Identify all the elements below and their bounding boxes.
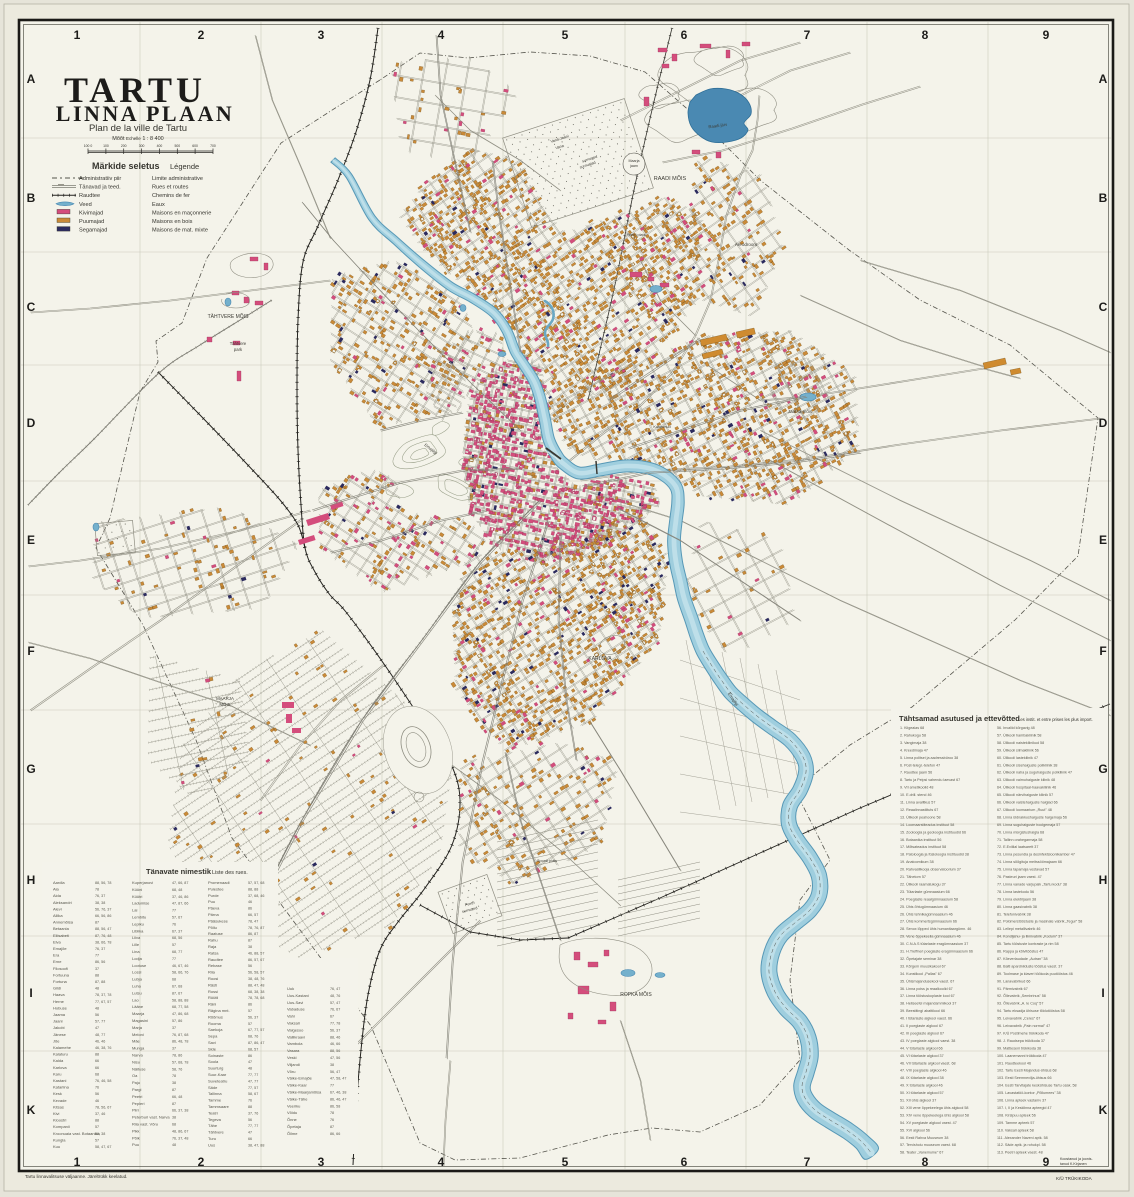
svg-text:75. Linna tapamaja vestavad 5: 75. Linna tapamaja vestavad 57	[997, 868, 1049, 872]
svg-text:37. Linna tööstuskoplaste kool: 37. Linna tööstuskoplaste kool 67	[900, 994, 955, 998]
svg-text:49. X tütarlaste algkool 46: 49. X tütarlaste algkool 46	[900, 1084, 943, 1088]
svg-text:57, 47: 57, 47	[330, 1001, 340, 1005]
svg-text:68, 77, 58: 68, 77, 58	[172, 1005, 188, 1009]
svg-text:Raatuse: Raatuse	[208, 931, 224, 936]
svg-text:68, 77: 68, 77	[172, 950, 182, 954]
svg-text:7: 7	[804, 28, 811, 42]
svg-text:Võru: Võru	[287, 1069, 295, 1074]
svg-text:Piiri: Piiri	[132, 1108, 139, 1113]
svg-text:67: 67	[330, 1015, 334, 1019]
svg-text:3: 3	[318, 28, 325, 42]
svg-text:37, 68, 46: 37, 68, 46	[248, 894, 264, 898]
svg-text:88, 56: 88, 56	[330, 1049, 340, 1053]
svg-text:Promenaadi: Promenaadi	[208, 880, 230, 885]
svg-text:7. Raudtee jaam 56: 7. Raudtee jaam 56	[900, 771, 932, 775]
svg-text:Herne: Herne	[53, 999, 65, 1004]
svg-text:87. Kõeverlaudade „Autran" 38: 87. Kõeverlaudade „Autran" 38	[997, 957, 1048, 961]
svg-text:Tähe: Tähe	[208, 1123, 218, 1128]
svg-text:80. Linna gaasivabrik 38: 80. Linna gaasivabrik 38	[997, 905, 1037, 909]
svg-text:Maisons en maçonnerie: Maisons en maçonnerie	[152, 210, 211, 216]
svg-text:104. Eesti Tarvitajate keskühi: 104. Eesti Tarvitajate keskühisuse Tartu…	[997, 1084, 1077, 1088]
svg-text:86, 58: 86, 58	[330, 1104, 340, 1108]
svg-text:9. VII ametikoolid 48: 9. VII ametikoolid 48	[900, 786, 933, 790]
svg-text:15. Zooloogia ja geoloogia ins: 15. Zooloogia ja geoloogia instituudid 6…	[900, 830, 966, 834]
svg-text:38, 47, 88: 38, 47, 88	[248, 1143, 264, 1147]
svg-text:Päeva: Päeva	[208, 906, 220, 911]
svg-text:66, 48: 66, 48	[172, 1095, 182, 1099]
svg-text:78, 86: 78, 86	[172, 1054, 182, 1058]
svg-text:Liiva: Liiva	[132, 935, 141, 940]
svg-text:78. Linna lastekodu 56: 78. Linna lastekodu 56	[997, 890, 1034, 894]
svg-text:77, 57: 77, 57	[248, 1086, 258, 1090]
svg-text:Õilme: Õilme	[287, 1131, 298, 1136]
svg-text:67. Ülikooli loomaarium „Ruut": 67. Ülikooli loomaarium „Ruut" 48	[997, 808, 1052, 812]
svg-text:Puu: Puu	[208, 899, 215, 904]
svg-text:38: 38	[172, 1116, 176, 1120]
svg-text:76: 76	[248, 1099, 252, 1103]
svg-text:57: 57	[172, 943, 176, 947]
svg-text:Rästi: Rästi	[208, 982, 217, 987]
svg-text:108. Kirsipuu apteek 56: 108. Kirsipuu apteek 56	[997, 1113, 1036, 1117]
svg-text:92. Õllevabrik „Sembrinus" 58: 92. Õllevabrik „Sembrinus" 58	[997, 993, 1046, 998]
svg-text:27. Ühis kommertsgümnaasium 6: 27. Ühis kommertsgümnaasium 66	[900, 920, 957, 924]
svg-text:57, 67: 57, 67	[172, 916, 182, 920]
svg-text:46. VII tütarlaste algkool vae: 46. VII tütarlaste algkool vaest. 68	[900, 1061, 956, 1065]
svg-text:57. Ülikooli hambakliinik 58: 57. Ülikooli hambakliinik 58	[997, 734, 1041, 738]
svg-text:tanud K.Kirjanen: tanud K.Kirjanen	[1060, 1162, 1087, 1166]
svg-text:87, 88: 87, 88	[95, 980, 105, 984]
svg-text:58, 67: 58, 67	[248, 1092, 258, 1096]
svg-text:Jaama mõis: Jaama mõis	[788, 409, 813, 414]
svg-text:200: 200	[121, 144, 127, 148]
svg-text:113. Peetri apteek vaest. 48: 113. Peetri apteek vaest. 48	[997, 1151, 1043, 1155]
svg-text:Tammsaare: Tammsaare	[208, 1104, 230, 1109]
svg-text:68: 68	[172, 1123, 176, 1127]
svg-text:Lossi: Lossi	[132, 970, 141, 975]
svg-text:86, 46, 47: 86, 46, 47	[330, 1097, 346, 1101]
svg-text:76, 37, 48: 76, 37, 48	[172, 1136, 188, 1140]
svg-text:Jõe: Jõe	[53, 1038, 60, 1043]
svg-text:Mäe: Mäe	[132, 1039, 141, 1044]
svg-text:Pepleri: Pepleri	[132, 1101, 145, 1106]
svg-text:24. Poeglaste reaalgümnaasium: 24. Poeglaste reaalgümnaasium 58	[900, 897, 958, 901]
svg-text:Tartu linnavalitsuse väljaanne: Tartu linnavalitsuse väljaanne. Järeltrü…	[25, 1174, 127, 1179]
svg-text:Näituse: Näituse	[132, 1066, 146, 1071]
svg-text:Rooma: Rooma	[208, 1021, 222, 1026]
svg-text:88, 88: 88, 88	[248, 887, 258, 891]
svg-text:66, 38: 66, 38	[95, 1132, 105, 1136]
svg-text:500: 500	[174, 144, 180, 148]
svg-text:Plan de la ville de Tartu: Plan de la ville de Tartu	[89, 123, 187, 134]
svg-text:Karlova: Karlova	[53, 1065, 67, 1070]
svg-text:88, 47, 48: 88, 47, 48	[248, 983, 264, 987]
svg-text:47, 66, 87: 47, 66, 87	[172, 881, 188, 885]
svg-text:Luha: Luha	[132, 984, 142, 989]
svg-text:Suurturg: Suurturg	[208, 1066, 223, 1071]
svg-text:Elva: Elva	[53, 939, 62, 944]
svg-text:Lodja: Lodja	[132, 956, 143, 961]
svg-text:19. Anatoomikum 38: 19. Anatoomikum 38	[900, 860, 934, 864]
svg-text:97. K/Ü Postimehe trükikoda 4: 97. K/Ü Postimehe trükikoda 47	[997, 1032, 1049, 1036]
svg-text:58. Ülikooli naistekliinikud: 58. Ülikooli naistekliinikud 58	[997, 741, 1044, 745]
svg-text:Märkide seletus: Märkide seletus	[92, 161, 160, 171]
svg-text:67, 37: 67, 37	[172, 929, 182, 933]
svg-text:6: 6	[681, 28, 688, 42]
svg-text:48: 48	[248, 1067, 252, 1071]
svg-text:58, 66, 76: 58, 66, 76	[172, 971, 188, 975]
svg-text:48, 77: 48, 77	[95, 1033, 105, 1037]
svg-text:46, 38, 76: 46, 38, 76	[95, 1046, 111, 1050]
svg-text:40. I tütarlaste algkool vaest: 40. I tütarlaste algkool vaest. 66	[900, 1017, 952, 1021]
svg-text:Savi: Savi	[208, 1040, 216, 1045]
svg-text:I: I	[29, 986, 32, 1000]
svg-text:68: 68	[95, 1072, 99, 1076]
svg-text:110. Vaksali apteek 58: 110. Vaksali apteek 58	[997, 1128, 1034, 1132]
svg-text:53. XIV vene õppekeelega ühis: 53. XIV vene õppekeelega ühis algkool 58	[900, 1113, 969, 1117]
svg-text:56, 47: 56, 47	[330, 1070, 340, 1074]
svg-text:Soinaste: Soinaste	[208, 1053, 224, 1058]
svg-text:73. Linna pesundia ja desinfek: 73. Linna pesundia ja desinfektsioonikam…	[997, 853, 1075, 857]
svg-text:87: 87	[248, 939, 252, 943]
svg-text:25. Ühis õhtugümnaasium 46: 25. Ühis õhtugümnaasium 46	[900, 905, 948, 909]
svg-text:Filosoofi: Filosoofi	[53, 966, 68, 971]
svg-text:79. Linna elektrijaam 38: 79. Linna elektrijaam 38	[997, 897, 1036, 901]
svg-text:Peetri plats: Peetri plats	[627, 233, 646, 237]
svg-text:86: 86	[248, 1003, 252, 1007]
svg-text:84. Kondijahu- ja liimivabrik: 84. Kondijahu- ja liimivabrik „Kodum" 37	[997, 935, 1062, 939]
svg-text:47, 77: 47, 77	[248, 1079, 258, 1083]
svg-text:56. Invaliid kõrgavig 48: 56. Invaliid kõrgavig 48	[997, 726, 1035, 730]
svg-text:56, 76, 37: 56, 76, 37	[95, 907, 111, 911]
svg-text:37: 37	[172, 1026, 176, 1030]
svg-text:Tähtvere: Tähtvere	[230, 341, 247, 346]
svg-text:106. Linna apteek vastamv 37: 106. Linna apteek vastamv 37	[997, 1099, 1046, 1103]
svg-text:77, 77: 77, 77	[248, 1073, 258, 1077]
svg-text:11. Linna avalitkus 57: 11. Linna avalitkus 57	[900, 801, 935, 805]
svg-text:Võidu: Võidu	[287, 1110, 297, 1115]
svg-text:Väike-Tähe: Väike-Tähe	[287, 1096, 308, 1101]
svg-text:76, 37: 76, 37	[95, 947, 105, 951]
svg-text:76: 76	[172, 922, 176, 926]
svg-text:Küütri: Küütri	[132, 894, 143, 899]
svg-text:400: 400	[157, 144, 163, 148]
svg-text:62. Ülikooli naha ja suguhaigu: 62. Ülikooli naha ja suguhaiguste polikl…	[997, 771, 1072, 775]
svg-text:29. Vene õppekeelia gümnaasium: 29. Vene õppekeelia gümnaasium 46	[900, 935, 961, 939]
svg-text:43. IV poeglaste algkool vaest: 43. IV poeglaste algkool vaest. 38	[900, 1039, 955, 1043]
svg-text:69. Linna suguhaiguste hoolgem: 69. Linna suguhaiguste hoolgemaja 57	[997, 823, 1060, 827]
svg-text:37, 46: 37, 46	[95, 1112, 105, 1116]
svg-text:38, 66, 78: 38, 66, 78	[95, 940, 111, 944]
svg-text:45. VI tütarlaste algkool 37: 45. VI tütarlaste algkool 37	[900, 1054, 944, 1058]
svg-text:Hobuse: Hobuse	[53, 1005, 68, 1010]
svg-text:Veski: Veski	[287, 1055, 297, 1060]
svg-text:Kivimajad: Kivimajad	[79, 210, 103, 216]
svg-text:Küüni: Küüni	[132, 887, 142, 892]
svg-text:67, 46, 38: 67, 46, 38	[330, 1091, 346, 1095]
svg-text:88: 88	[95, 1053, 99, 1057]
svg-text:36. Linna poiss ja reaalkoolid: 36. Linna poiss ja reaalkoolid 67	[900, 987, 953, 991]
svg-text:Lille: Lille	[132, 942, 140, 947]
svg-text:66: 66	[248, 1137, 252, 1141]
svg-text:47, 56: 47, 56	[330, 1056, 340, 1060]
svg-text:76, 87, 68: 76, 87, 68	[172, 1033, 188, 1037]
svg-text:Kompanii: Kompanii	[53, 1124, 70, 1129]
svg-text:14. Loomaarstiteadus instituut: 14. Loomaarstiteadus instituut 58	[900, 823, 954, 827]
svg-text:Kivi: Kivi	[53, 1111, 60, 1116]
svg-text:Aerodroom: Aerodroom	[735, 242, 758, 247]
svg-text:Puu: Puu	[132, 1142, 139, 1147]
svg-text:Liste des rues.: Liste des rues.	[212, 870, 248, 876]
svg-text:Les instit. et entre prises le: Les instit. et entre prises les plus imp…	[1018, 717, 1093, 722]
svg-text:Annemõisa: Annemõisa	[53, 920, 74, 925]
svg-text:Raudtee: Raudtee	[79, 193, 100, 199]
svg-text:C: C	[1099, 300, 1108, 314]
svg-text:58. Teater „Vanemuine" 67: 58. Teater „Vanemuine" 67	[900, 1151, 943, 1155]
svg-text:86, 48, 78: 86, 48, 78	[172, 1040, 188, 1044]
svg-text:47, 86, 68: 47, 86, 68	[172, 1012, 188, 1016]
svg-text:Gildi: Gildi	[53, 986, 61, 991]
svg-text:4: 4	[438, 28, 445, 42]
svg-text:90. Lanavabrikud 66: 90. Lanavabrikud 66	[997, 979, 1030, 983]
svg-text:3: 3	[318, 1155, 325, 1169]
svg-text:55. XVI algkool 56: 55. XVI algkool 56	[900, 1128, 930, 1132]
svg-text:2: 2	[198, 1155, 205, 1169]
svg-text:Säde: Säde	[208, 1085, 218, 1090]
svg-text:74. Linna sõõgituja meitssööma: 74. Linna sõõgituja meitssöömajaam 66	[997, 860, 1062, 864]
svg-text:Kesk: Kesk	[53, 1091, 62, 1096]
svg-text:100. Laanemanni trükikoda 47: 100. Laanemanni trükikoda 47	[997, 1054, 1047, 1058]
svg-text:33. Kõrgem muusikakool 67: 33. Kõrgem muusikakool 67	[900, 964, 946, 968]
svg-text:72. E.Eviilial laatsarett 37: 72. E.Eviilial laatsarett 37	[997, 845, 1038, 849]
svg-text:12. Reaalinnastiituts 67: 12. Reaalinnastiituts 67	[900, 808, 938, 812]
svg-text:8: 8	[922, 1155, 929, 1169]
svg-text:ROPKA MÕIS: ROPKA MÕIS	[620, 991, 652, 998]
svg-text:KARLOVA: KARLOVA	[588, 656, 612, 662]
svg-text:9: 9	[1043, 28, 1050, 42]
svg-text:5. Linna politsei ja aadressbü: 5. Linna politsei ja aadressbüroo 38	[900, 756, 958, 760]
svg-text:23. Tütarlaste gümnaasium 66: 23. Tütarlaste gümnaasium 66	[900, 890, 950, 894]
svg-text:Meloni: Meloni	[132, 1032, 144, 1037]
svg-text:Ladumise: Ladumise	[132, 901, 150, 906]
svg-text:Oa: Oa	[132, 1073, 138, 1078]
svg-text:5: 5	[562, 28, 569, 42]
svg-text:Jakobi: Jakobi	[53, 1025, 65, 1030]
svg-text:Pargi: Pargi	[132, 1087, 141, 1092]
svg-text:Roosi: Roosi	[208, 976, 218, 981]
svg-text:Jänese: Jänese	[53, 1032, 67, 1037]
svg-text:109. Tamme apteek 57: 109. Tamme apteek 57	[997, 1121, 1034, 1125]
svg-text:Õnne: Õnne	[287, 1117, 298, 1122]
svg-text:E: E	[27, 533, 35, 547]
svg-text:Põik: Põik	[132, 1135, 140, 1140]
svg-text:TÄHTVERE MÕIS: TÄHTVERE MÕIS	[208, 313, 250, 320]
svg-text:Väike-Kaar: Väike-Kaar	[287, 1083, 307, 1088]
svg-text:86: 86	[248, 907, 252, 911]
svg-text:46: 46	[248, 900, 252, 904]
svg-text:Munga: Munga	[132, 1046, 145, 1051]
svg-text:57: 57	[95, 1138, 99, 1142]
svg-text:Narva: Narva	[132, 1053, 143, 1058]
svg-text:8: 8	[922, 28, 929, 42]
svg-text:112. Säde aptk. ja rohukpl. 5: 112. Säde aptk. ja rohukpl. 58	[997, 1143, 1046, 1147]
svg-text:Purde: Purde	[208, 893, 219, 898]
svg-text:47. VIII poeglaste algkool 46: 47. VIII poeglaste algkool 46	[900, 1069, 947, 1073]
svg-text:3. Vangimaja 38: 3. Vangimaja 38	[900, 741, 926, 745]
svg-text:22. Ülikooli raamatukogu 37: 22. Ülikooli raamatukogu 37	[900, 883, 946, 887]
svg-text:66, 37, 38: 66, 37, 38	[172, 1109, 188, 1113]
svg-text:76: 76	[330, 1118, 334, 1122]
svg-text:16. Botaanika instituut 56: 16. Botaanika instituut 56	[900, 838, 941, 842]
svg-text:F: F	[27, 644, 34, 658]
svg-text:Tegeva: Tegeva	[208, 1117, 222, 1122]
svg-text:Lubja: Lubja	[132, 977, 143, 982]
svg-text:MAARJA: MAARJA	[216, 696, 234, 701]
svg-text:48. IX tütarlaste algkool 38: 48. IX tütarlaste algkool 38	[900, 1076, 944, 1080]
svg-text:Rüütli: Rüütli	[208, 995, 218, 1000]
svg-text:Peetri: Peetri	[132, 1094, 143, 1099]
svg-text:Segamajad: Segamajad	[79, 228, 107, 234]
svg-text:91. Pärmivabrik 67: 91. Pärmivabrik 67	[997, 987, 1028, 991]
svg-text:77, 67, 57: 77, 67, 57	[95, 1000, 111, 1004]
svg-text:K/Ü TRÜKIKODA: K/Ü TRÜKIKODA	[1056, 1175, 1093, 1181]
svg-text:96. Leivavabrik „Pain normal": 96. Leivavabrik „Pain normal" 47	[997, 1024, 1050, 1028]
svg-text:26. Ühis tehnikagümnaasium 46: 26. Ühis tehnikagümnaasium 46	[900, 912, 953, 916]
svg-text:Era: Era	[53, 953, 60, 958]
svg-text:85. Tartu tööstuste kontraste: 85. Tartu tööstuste kontraste ja rim 58	[997, 942, 1059, 946]
svg-text:Kalda: Kalda	[53, 1058, 64, 1063]
svg-text:37, 46, 86: 37, 46, 86	[172, 895, 188, 899]
svg-text:Aardla: Aardla	[53, 880, 65, 885]
svg-text:Maisons en bois: Maisons en bois	[152, 219, 193, 225]
svg-text:51. XII ühis algkool 37: 51. XII ühis algkool 37	[900, 1099, 936, 1103]
svg-text:Riia vast. Võru: Riia vast. Võru	[132, 1122, 158, 1127]
svg-text:48: 48	[95, 987, 99, 991]
svg-text:Karu: Karu	[53, 1071, 61, 1076]
svg-text:Paju: Paju	[132, 1080, 140, 1085]
svg-text:67, 77, 57: 67, 77, 57	[248, 1028, 264, 1032]
svg-text:Kloostri: Kloostri	[53, 1118, 66, 1123]
svg-text:65. Ülikooli närvihaiguste kli: 65. Ülikooli närvihaiguste kliinik 57	[997, 793, 1053, 797]
svg-text:76, 47: 76, 47	[330, 987, 340, 991]
svg-text:Side: Side	[208, 1046, 217, 1051]
svg-text:Valgesoo: Valgesoo	[287, 1027, 304, 1032]
svg-text:Uus-Savi: Uus-Savi	[287, 1000, 303, 1005]
svg-text:Rues et routes: Rues et routes	[152, 185, 189, 191]
svg-text:Rõõmus: Rõõmus	[208, 1014, 223, 1019]
svg-text:78, 76, 87: 78, 76, 87	[248, 926, 264, 930]
svg-text:47: 47	[248, 1131, 252, 1135]
svg-text:78, 78, 68: 78, 78, 68	[248, 996, 264, 1000]
svg-text:86, 57, 67: 86, 57, 67	[248, 958, 264, 962]
svg-text:Kastani: Kastani	[53, 1078, 66, 1083]
svg-text:38. Heliseefel majandammikool: 38. Heliseefel majandammikool 37	[900, 1002, 956, 1006]
svg-text:Vaksali: Vaksali	[287, 1021, 300, 1026]
svg-text:34. Kunstikool „Pallas" 67: 34. Kunstikool „Pallas" 67	[900, 972, 942, 976]
svg-text:77. Linna vanade varjupaik „Ta: 77. Linna vanade varjupaik „Tartu kodu" …	[997, 883, 1067, 887]
svg-text:103. Eesti Seemnevilja-ühisus: 103. Eesti Seemnevilja-ühisus 66	[997, 1076, 1052, 1080]
svg-text:D: D	[27, 416, 36, 430]
svg-text:48, 86, 67: 48, 86, 67	[172, 1129, 188, 1133]
svg-text:111. Alexander Naveni aptk. 5: 111. Alexander Naveni aptk. 58	[997, 1136, 1048, 1140]
svg-text:A: A	[1099, 72, 1108, 86]
svg-text:jaam: jaam	[629, 164, 638, 168]
svg-text:95. Leivavabrik „Ceres" 67: 95. Leivavabrik „Ceres" 67	[997, 1017, 1040, 1021]
svg-text:37, 76: 37, 76	[248, 1111, 258, 1115]
svg-text:2. Rahukogu 58: 2. Rahukogu 58	[900, 734, 926, 738]
svg-text:28. Senox lõpped ühis humanita: 28. Senox lõpped ühis humanitaargümn. 46	[900, 927, 971, 931]
svg-text:B: B	[27, 191, 36, 205]
svg-text:81. Telefonivabrik 38: 81. Telefonivabrik 38	[997, 912, 1031, 916]
svg-text:Maarja: Maarja	[132, 1011, 145, 1016]
svg-text:107. I, II ja Kesklinna apteeg: 107. I, II ja Kesklinna apteegid 47	[997, 1106, 1052, 1110]
svg-text:46, 46: 46, 46	[95, 1039, 105, 1043]
svg-text:57, 86: 57, 86	[172, 1019, 182, 1023]
svg-text:46: 46	[95, 1099, 99, 1103]
svg-text:Suur-Kaar: Suur-Kaar	[208, 1072, 227, 1077]
svg-text:77: 77	[172, 957, 176, 961]
svg-text:44. V tütarlaste algkool 66: 44. V tütarlaste algkool 66	[900, 1046, 943, 1050]
svg-text:Betaania: Betaania	[53, 926, 70, 931]
svg-text:35. Ühismajandusekool vaest.: 35. Ühismajandusekool vaest. 67	[900, 979, 954, 983]
svg-text:Erne: Erne	[53, 959, 62, 964]
svg-text:41. II poeglaste algkool 67: 41. II poeglaste algkool 67	[900, 1024, 943, 1028]
svg-text:93. Õllevabrik „A. le Coq" 57: 93. Õllevabrik „A. le Coq" 57	[997, 1001, 1043, 1006]
svg-text:88: 88	[95, 973, 99, 977]
svg-text:Lootuse: Lootuse	[132, 963, 147, 968]
svg-text:47, 58, 47: 47, 58, 47	[330, 1077, 346, 1081]
svg-text:88: 88	[248, 1105, 252, 1109]
svg-text:59. Ülikooli silmakliinik 56: 59. Ülikooli silmakliinik 56	[997, 748, 1039, 752]
svg-text:68. Linna üldnakkushaiguste ha: 68. Linna üldnakkushaiguste haigemaja 56	[997, 815, 1067, 819]
svg-text:Rebase: Rebase	[208, 963, 223, 968]
svg-text:Spordi plats: Spordi plats	[537, 859, 557, 863]
svg-text:Pikk: Pikk	[132, 1128, 140, 1133]
svg-text:1. Kiigeaias 68: 1. Kiigeaias 68	[900, 726, 924, 730]
svg-text:47: 47	[95, 1026, 99, 1030]
svg-text:600: 600	[192, 144, 198, 148]
svg-text:Marja: Marja	[132, 1025, 143, 1030]
svg-text:Katariina: Katariina	[53, 1085, 70, 1090]
svg-text:48, 76: 48, 76	[330, 994, 340, 998]
svg-text:5: 5	[562, 1155, 569, 1169]
svg-text:RAADI MÕIS: RAADI MÕIS	[654, 175, 687, 182]
svg-text:87: 87	[172, 1088, 176, 1092]
svg-text:Aida: Aida	[53, 893, 62, 898]
svg-text:Suveteatru: Suveteatru	[208, 1078, 227, 1083]
svg-text:Kuu: Kuu	[53, 1144, 60, 1149]
svg-text:66: 66	[95, 1059, 99, 1063]
svg-text:68, 38, 38: 68, 38, 38	[248, 990, 264, 994]
svg-text:101. Raudteekool 46: 101. Raudteekool 46	[997, 1061, 1031, 1065]
svg-text:Lepiku: Lepiku	[132, 921, 144, 926]
svg-text:Tähtvere: Tähtvere	[208, 1130, 225, 1135]
svg-text:Riia: Riia	[208, 970, 216, 975]
svg-text:99. Mattieseni trükikoda 38: 99. Mattieseni trükikoda 38	[997, 1046, 1041, 1050]
svg-text:G: G	[1098, 762, 1107, 776]
svg-text:Kalamehe: Kalamehe	[53, 1045, 72, 1050]
svg-text:88: 88	[95, 1119, 99, 1123]
svg-text:87: 87	[172, 1102, 176, 1106]
svg-text:700: 700	[210, 144, 216, 148]
svg-text:38: 38	[248, 945, 252, 949]
svg-text:76. Pasteuri jaam vaest. 47: 76. Pasteuri jaam vaest. 47	[997, 875, 1042, 879]
svg-text:42. III poeglaste algkool 67: 42. III poeglaste algkool 67	[900, 1032, 944, 1036]
svg-text:park: park	[234, 347, 243, 352]
svg-text:88, 56, 47: 88, 56, 47	[95, 927, 111, 931]
svg-text:Räni: Räni	[208, 1002, 216, 1007]
svg-text:1: 1	[74, 1155, 81, 1169]
svg-text:56, 37: 56, 37	[330, 1028, 340, 1032]
